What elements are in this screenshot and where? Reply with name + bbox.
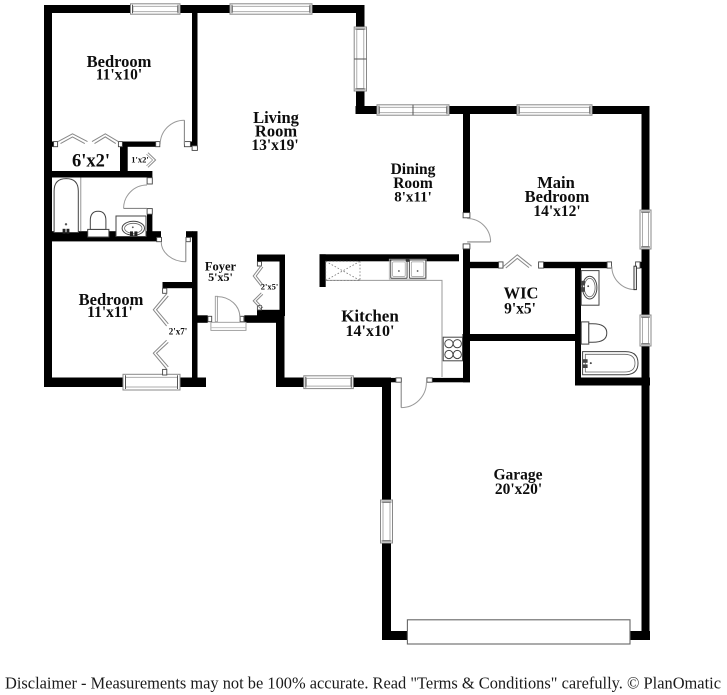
svg-text:8'x11': 8'x11' [394,190,432,206]
svg-text:1'x2': 1'x2' [131,155,148,165]
svg-text:Disclaimer - Measurements may: Disclaimer - Measurements may not be 100… [5,674,721,693]
svg-text:11'x11': 11'x11' [87,304,133,321]
svg-text:5'x5': 5'x5' [208,270,233,284]
svg-text:14'x10': 14'x10' [346,323,395,340]
svg-text:2'x5': 2'x5' [261,282,278,292]
svg-text:20'x20': 20'x20' [495,481,542,498]
svg-text:11'x10': 11'x10' [96,67,143,84]
svg-text:9'x5': 9'x5' [504,301,536,318]
svg-text:14'x12': 14'x12' [533,203,580,220]
svg-text:6'x2': 6'x2' [72,152,110,172]
svg-text:2'x7': 2'x7' [169,327,188,337]
svg-text:13'x19': 13'x19' [251,137,298,154]
